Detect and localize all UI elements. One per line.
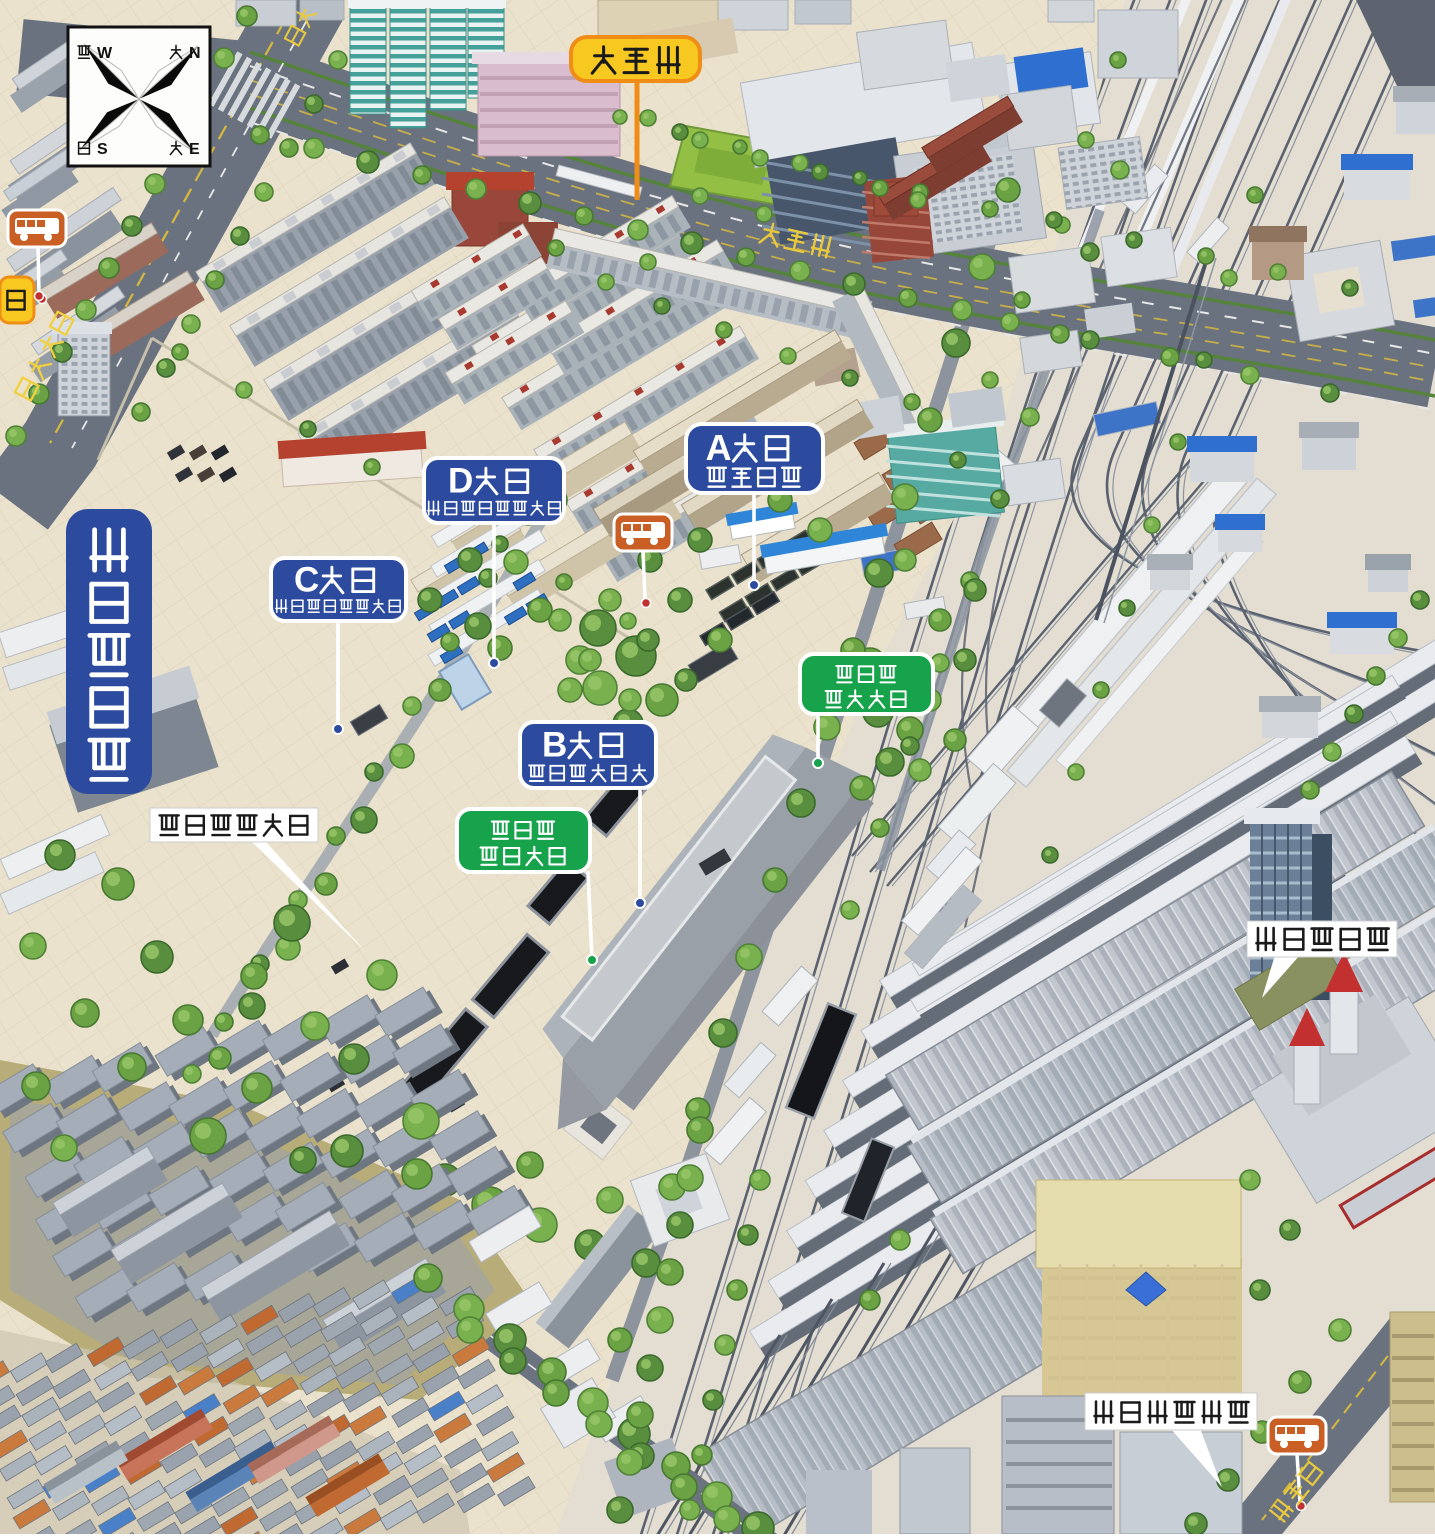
svg-text:N: N [189, 45, 201, 62]
svg-text:A: A [706, 427, 732, 468]
svg-text:E: E [189, 141, 200, 158]
svg-text:B: B [542, 726, 567, 765]
svg-text:S: S [97, 141, 108, 158]
svg-text:C: C [294, 561, 319, 600]
svg-text:W: W [97, 45, 113, 62]
svg-text:D: D [448, 462, 473, 501]
